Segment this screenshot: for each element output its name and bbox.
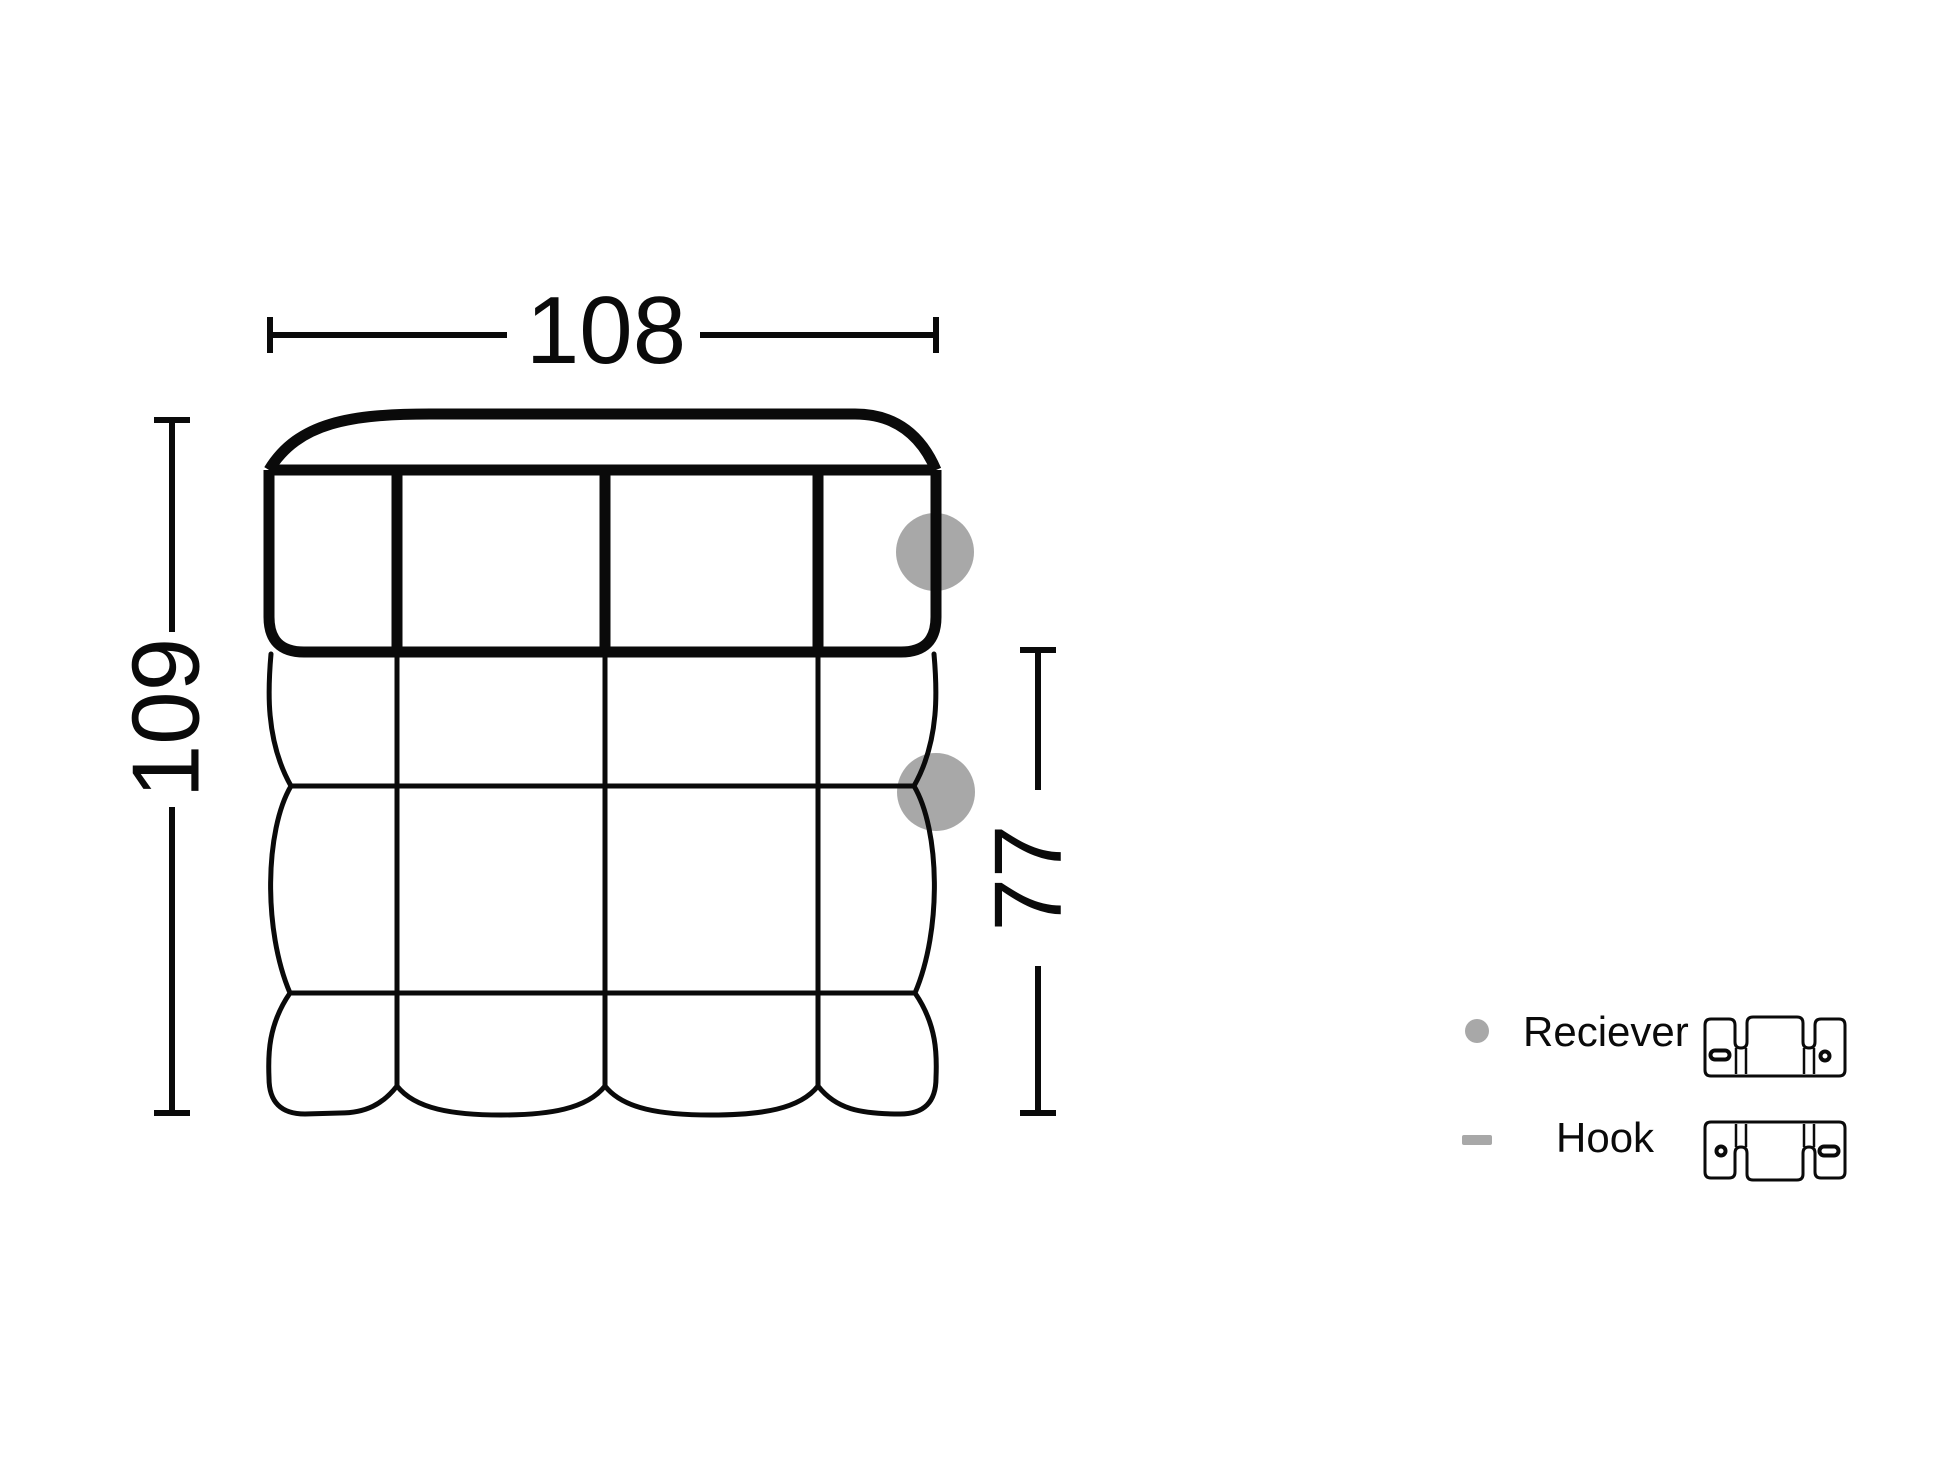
legend-receiver-row: Reciever <box>1465 1008 1845 1076</box>
sofa-dimension-diagram: 108 109 77 Reciever <box>0 0 1946 1464</box>
receiver-bracket-icon <box>1705 1017 1845 1076</box>
sofa-dimension-diagram-page: 108 109 77 Reciever <box>0 0 1946 1464</box>
height-dimension: 109 <box>113 420 220 1113</box>
width-dimension: 108 <box>270 277 936 384</box>
receiver-point-middle <box>897 753 975 831</box>
legend-hook-label: Hook <box>1556 1114 1655 1161</box>
height-dim-label: 109 <box>113 638 220 798</box>
legend: Reciever Hook <box>1462 1008 1845 1180</box>
depth-dimension: 77 <box>975 650 1082 1113</box>
sofa-body-outline <box>269 654 937 1115</box>
hook-dash-icon <box>1462 1135 1492 1145</box>
hook-bracket-icon <box>1705 1122 1845 1180</box>
receiver-dot-icon <box>1465 1019 1489 1043</box>
depth-dim-label: 77 <box>975 825 1082 932</box>
legend-receiver-label: Reciever <box>1523 1008 1689 1055</box>
legend-hook-row: Hook <box>1462 1114 1845 1180</box>
width-dim-label: 108 <box>526 277 686 384</box>
